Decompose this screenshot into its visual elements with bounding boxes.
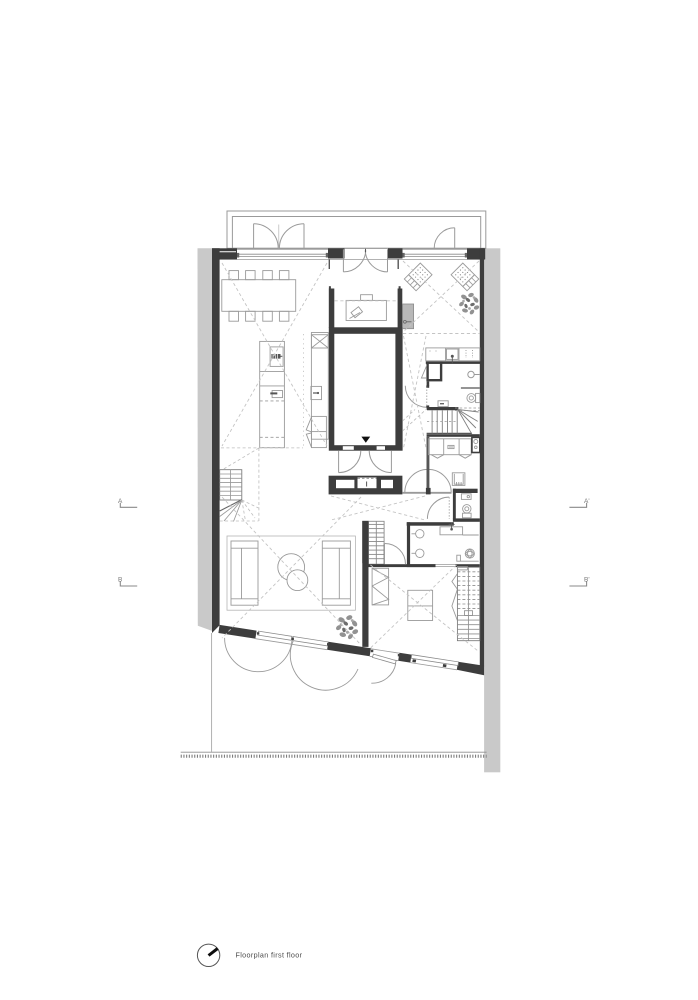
svg-text:B: B	[118, 577, 122, 584]
svg-text:A: A	[118, 498, 123, 505]
svg-text:B': B'	[584, 577, 590, 584]
svg-text:A': A'	[584, 498, 590, 505]
svg-text:Floorplan first floor: Floorplan first floor	[236, 950, 303, 959]
